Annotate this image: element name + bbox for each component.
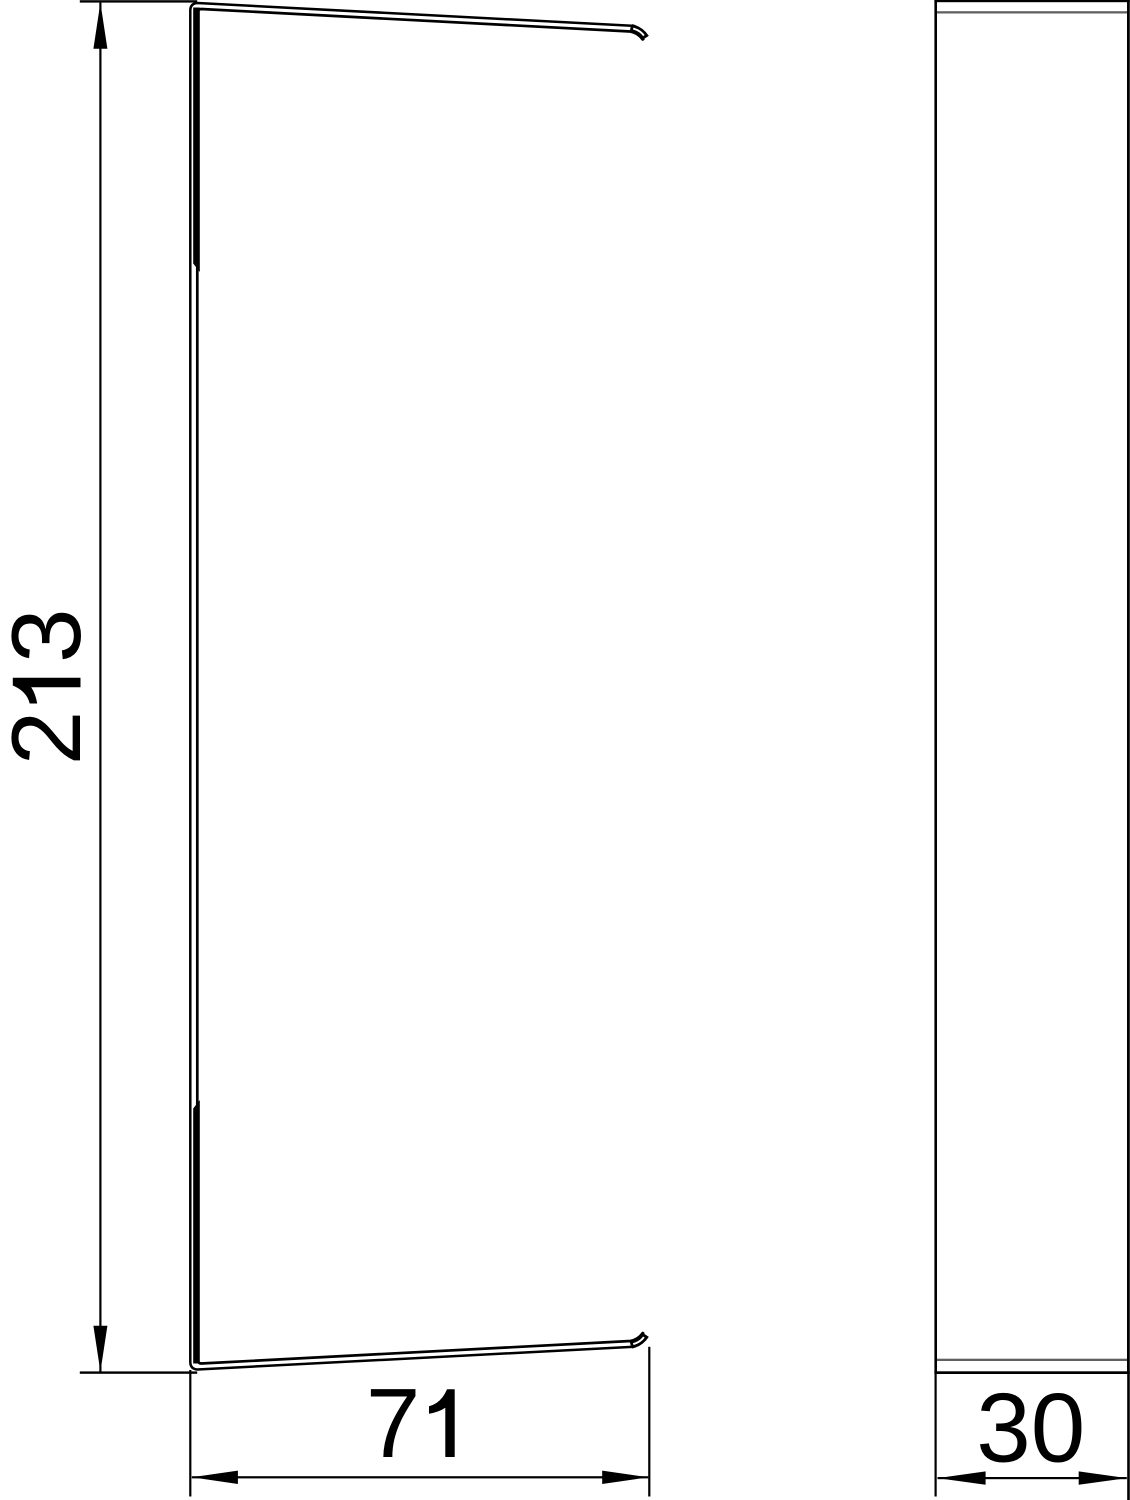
- svg-text:3: 3: [0, 608, 101, 663]
- svg-text:30: 30: [976, 1373, 1085, 1483]
- svg-text:2: 2: [0, 711, 101, 766]
- svg-text:7: 7: [366, 1368, 421, 1478]
